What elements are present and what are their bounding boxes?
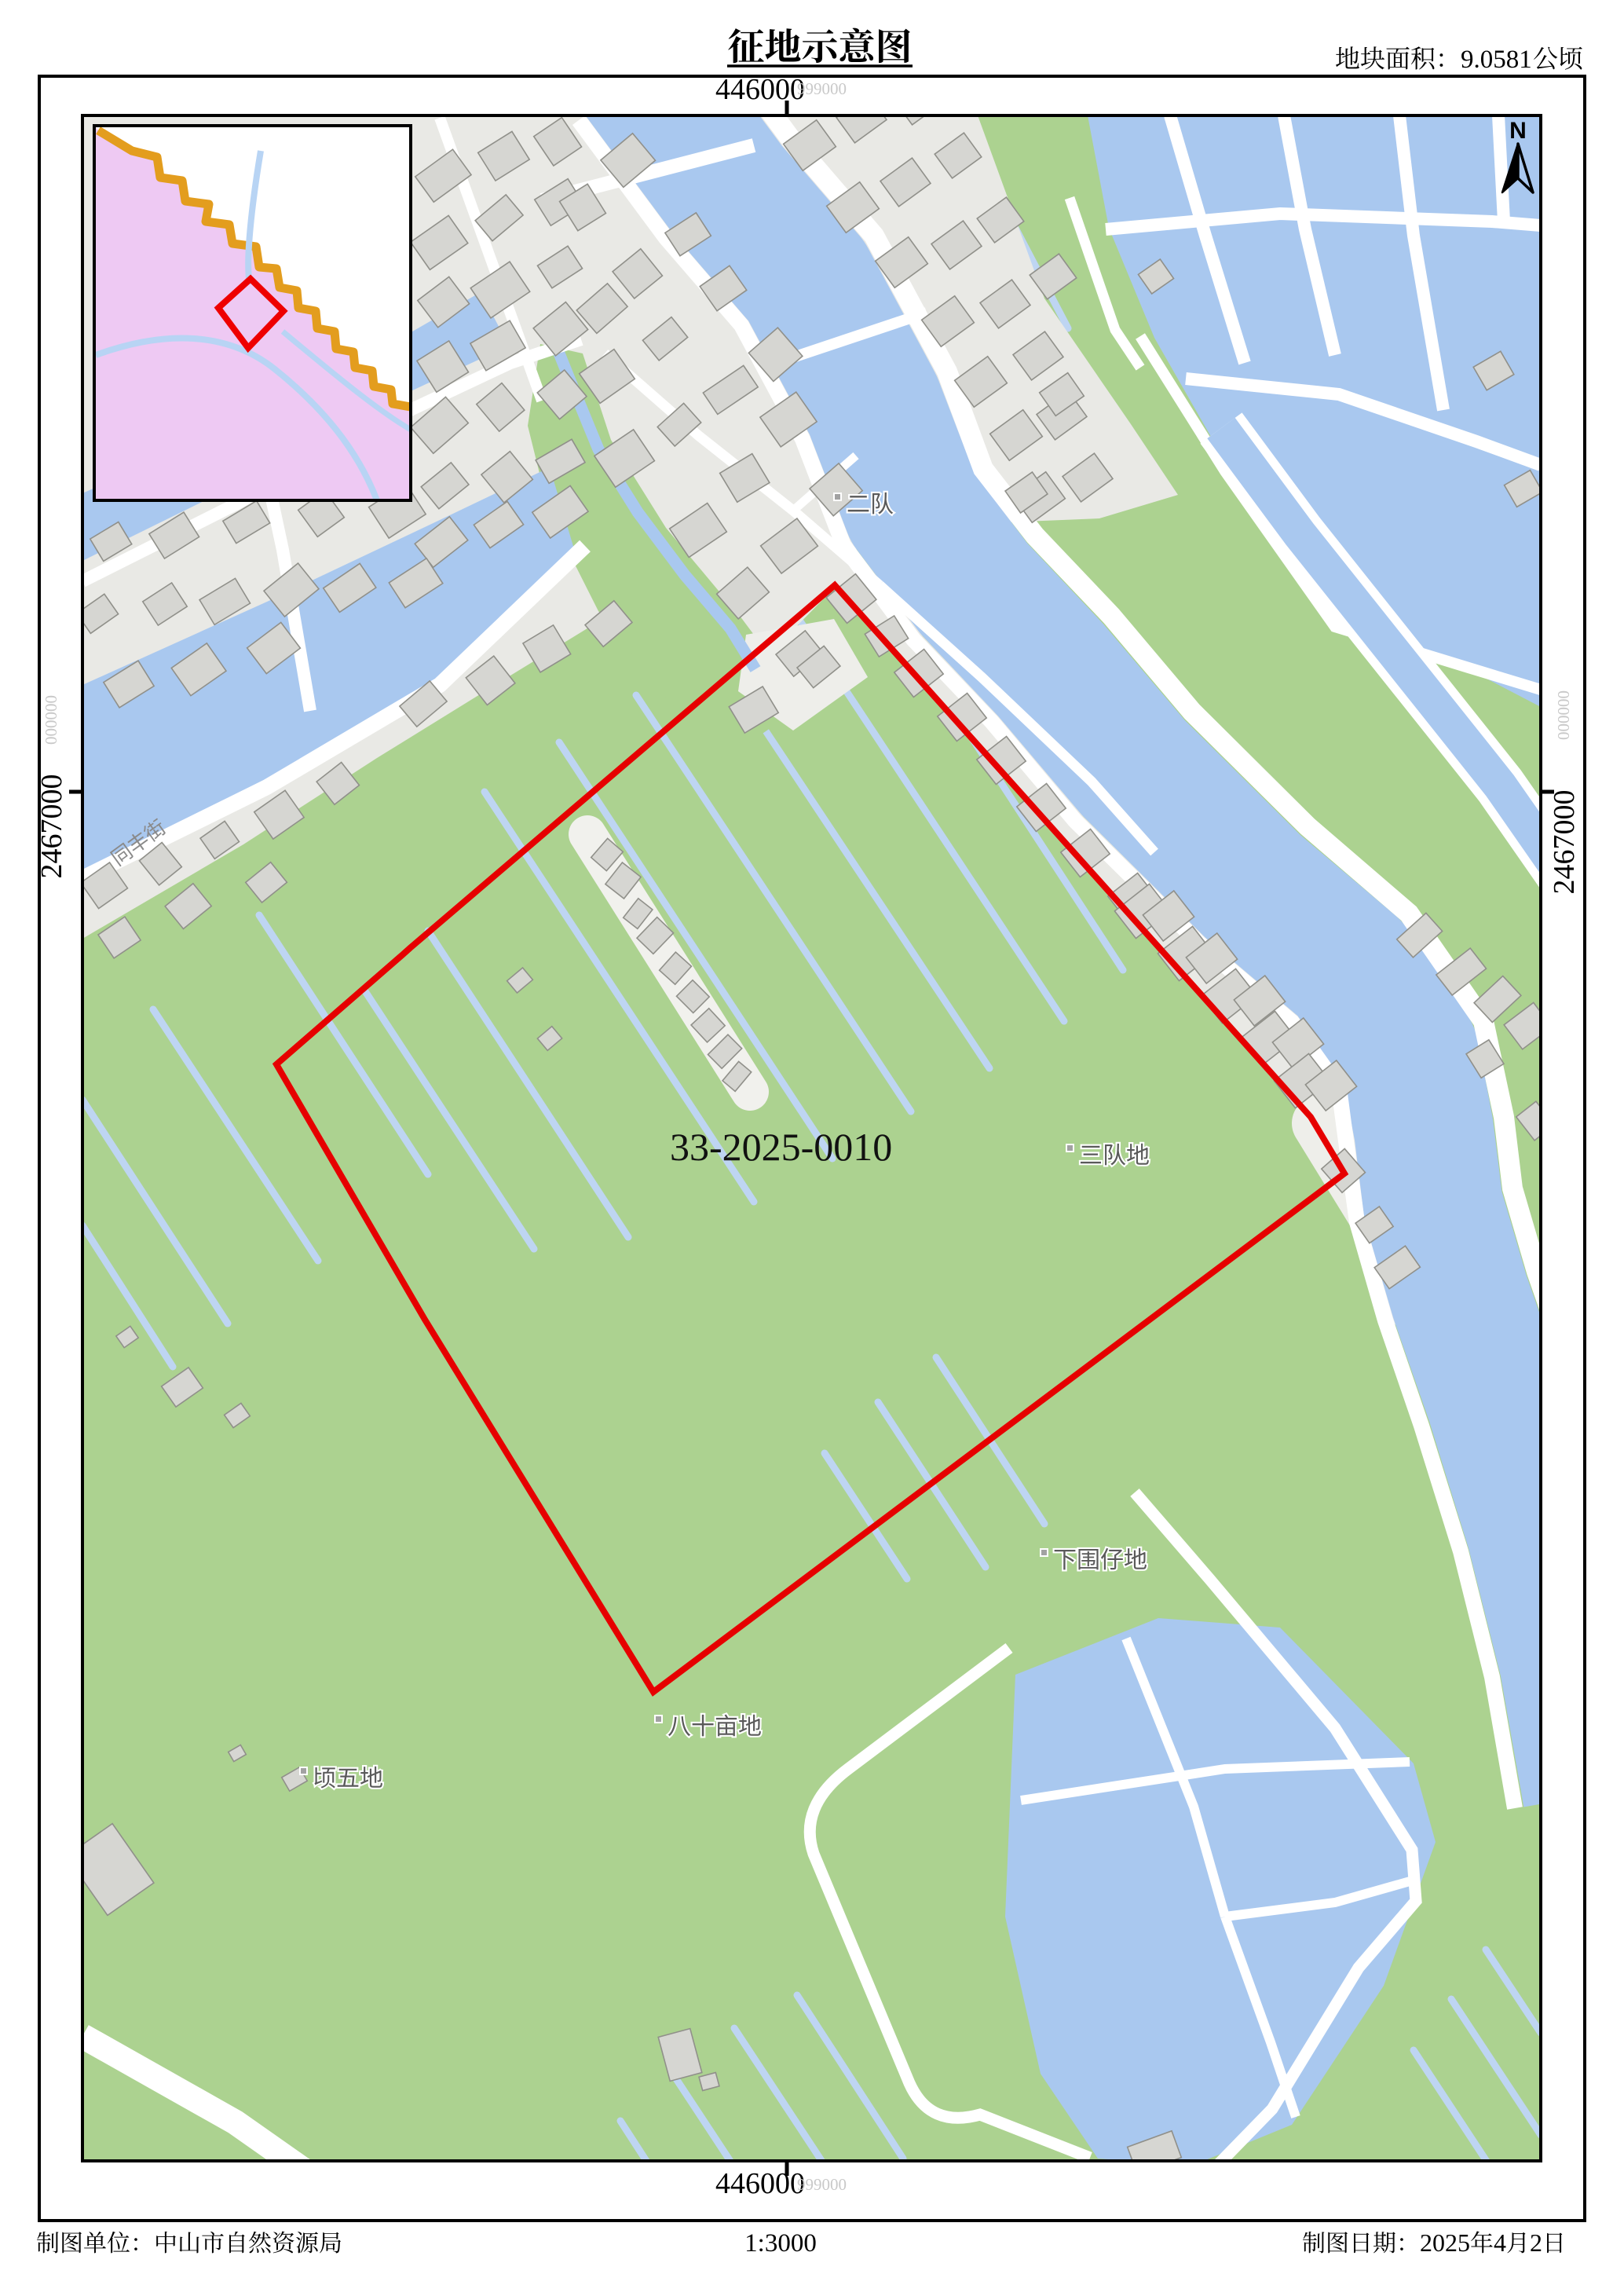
svg-text:33-2025-0010: 33-2025-0010: [670, 1125, 892, 1169]
svg-text:999000: 999000: [797, 79, 847, 98]
svg-text:2025: 2025: [1420, 2228, 1470, 2257]
svg-text:000000: 000000: [42, 695, 60, 745]
svg-text:1:3000: 1:3000: [744, 2229, 817, 2258]
svg-text:9.0581: 9.0581: [1461, 46, 1532, 74]
svg-text:2: 2: [1530, 2228, 1542, 2257]
svg-text:446000: 446000: [715, 2167, 805, 2200]
svg-text:446000: 446000: [715, 73, 805, 106]
svg-text:999000: 999000: [797, 2175, 847, 2194]
svg-text:N: N: [1509, 118, 1527, 144]
svg-text:000000: 000000: [1554, 690, 1573, 740]
svg-text:4: 4: [1494, 2228, 1506, 2257]
svg-text:2467000: 2467000: [35, 774, 68, 879]
svg-text:2467000: 2467000: [1548, 790, 1581, 895]
